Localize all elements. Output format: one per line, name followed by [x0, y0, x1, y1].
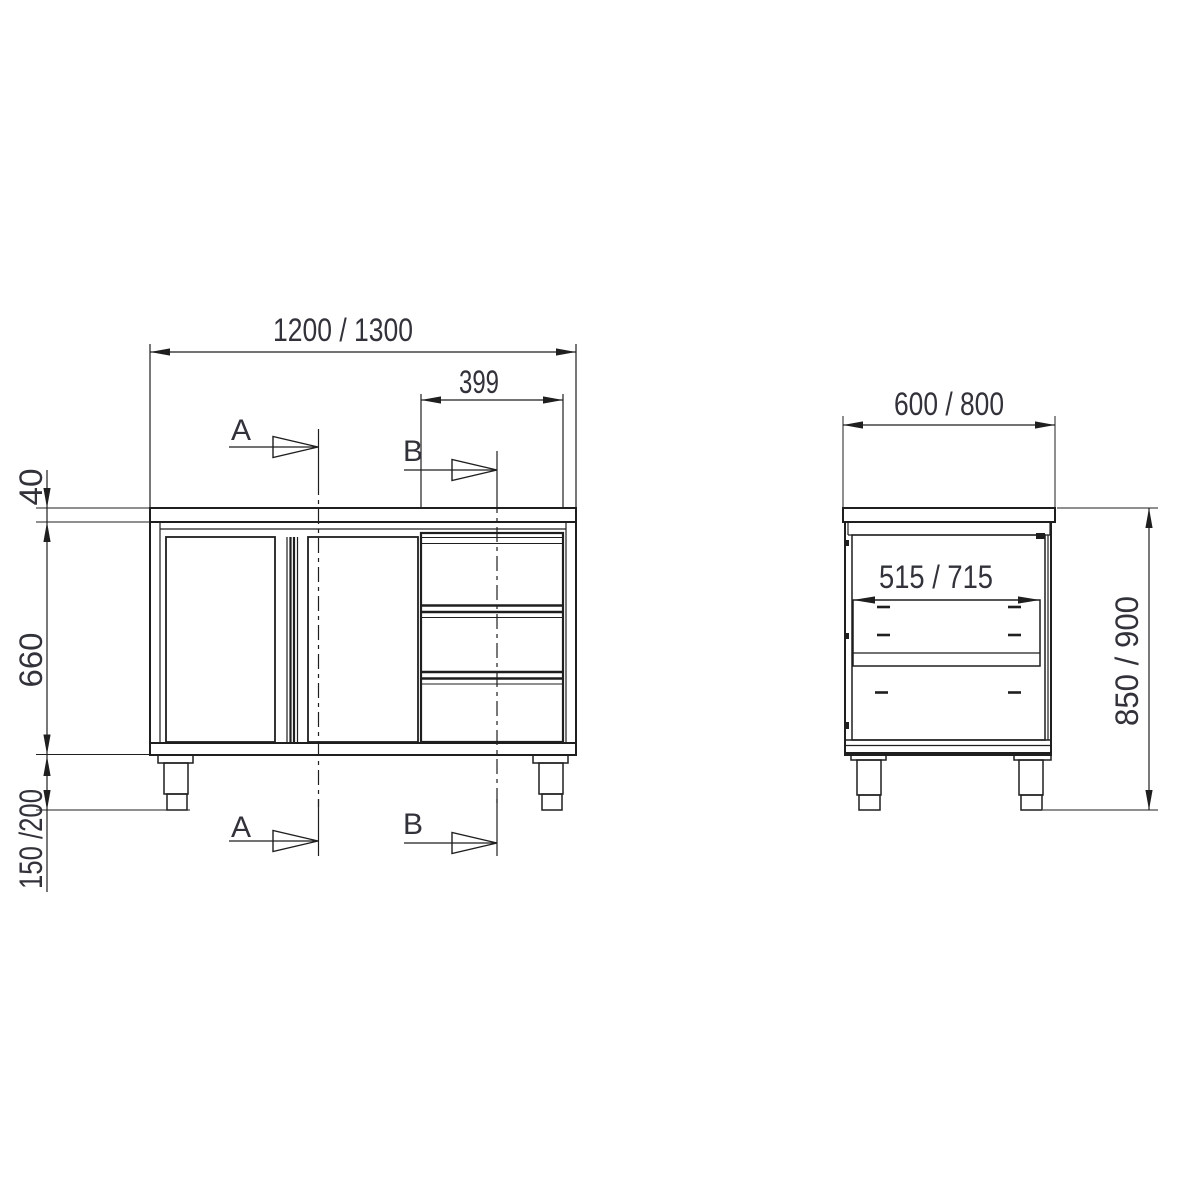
- dim-worktop-thickness-label: 40: [13, 469, 49, 506]
- sliding-door-left: [166, 537, 275, 742]
- technical-drawing-page: 1200 / 1300 399 40 660 150 /200: [0, 0, 1200, 1200]
- dim-leg-height-label: 150 /200: [13, 789, 49, 889]
- wall-mark: [845, 540, 849, 546]
- worktop-side: [843, 508, 1055, 522]
- technical-drawing: 1200 / 1300 399 40 660 150 /200: [0, 0, 1200, 1200]
- dim-drawer-section-width-label: 399: [459, 364, 499, 400]
- drawer-stack: [421, 533, 563, 742]
- dim-body-height-label: 660: [13, 633, 49, 688]
- corner-mark: [1036, 533, 1045, 539]
- dim-overall-height-label: 850 / 900: [1109, 596, 1145, 726]
- dim-overall-width-label: 1200 / 1300: [273, 312, 413, 348]
- section-b-label-bottom: B: [403, 808, 423, 841]
- dim-depth-label: 600 / 800: [894, 386, 1004, 422]
- wall-mark: [845, 633, 849, 639]
- worktop-front: [150, 508, 576, 522]
- dim-inner-depth-label: 515 / 715: [879, 559, 993, 595]
- drawer-slide-unit: [853, 600, 1040, 666]
- section-a-label-top: A: [231, 414, 251, 447]
- section-a-label-bottom: A: [231, 811, 251, 844]
- drawer-stack-outline: [421, 533, 563, 742]
- sliding-door-right: [308, 537, 418, 742]
- wall-mark: [845, 722, 849, 729]
- section-b-label-top: B: [403, 435, 423, 468]
